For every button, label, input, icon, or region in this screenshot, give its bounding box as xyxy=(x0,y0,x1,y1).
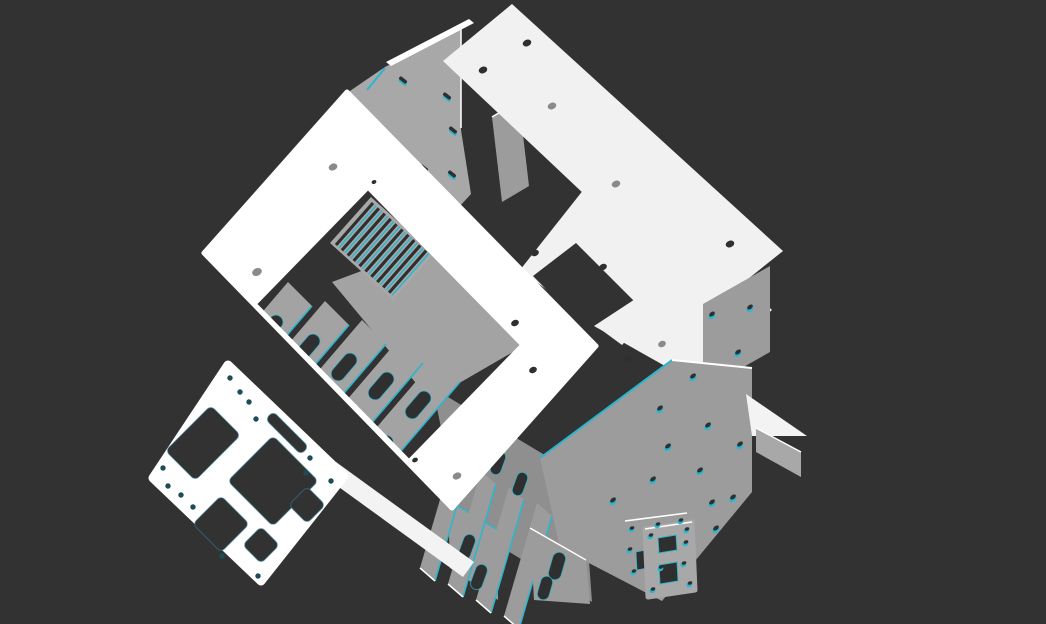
hole xyxy=(303,470,308,475)
hole xyxy=(178,492,183,497)
hole xyxy=(227,375,232,380)
hole xyxy=(219,553,224,558)
hole xyxy=(165,483,170,488)
hole xyxy=(246,399,251,404)
cad-viewport-canvas[interactable] xyxy=(0,0,1046,624)
hole xyxy=(160,465,165,470)
hole xyxy=(328,478,333,483)
hole xyxy=(237,389,242,394)
hole xyxy=(253,416,258,421)
mount-plate-front-cutout xyxy=(658,535,677,553)
cad-viewport[interactable] xyxy=(0,0,1046,624)
hole xyxy=(307,455,312,460)
hole xyxy=(255,573,260,578)
hole xyxy=(190,504,195,509)
